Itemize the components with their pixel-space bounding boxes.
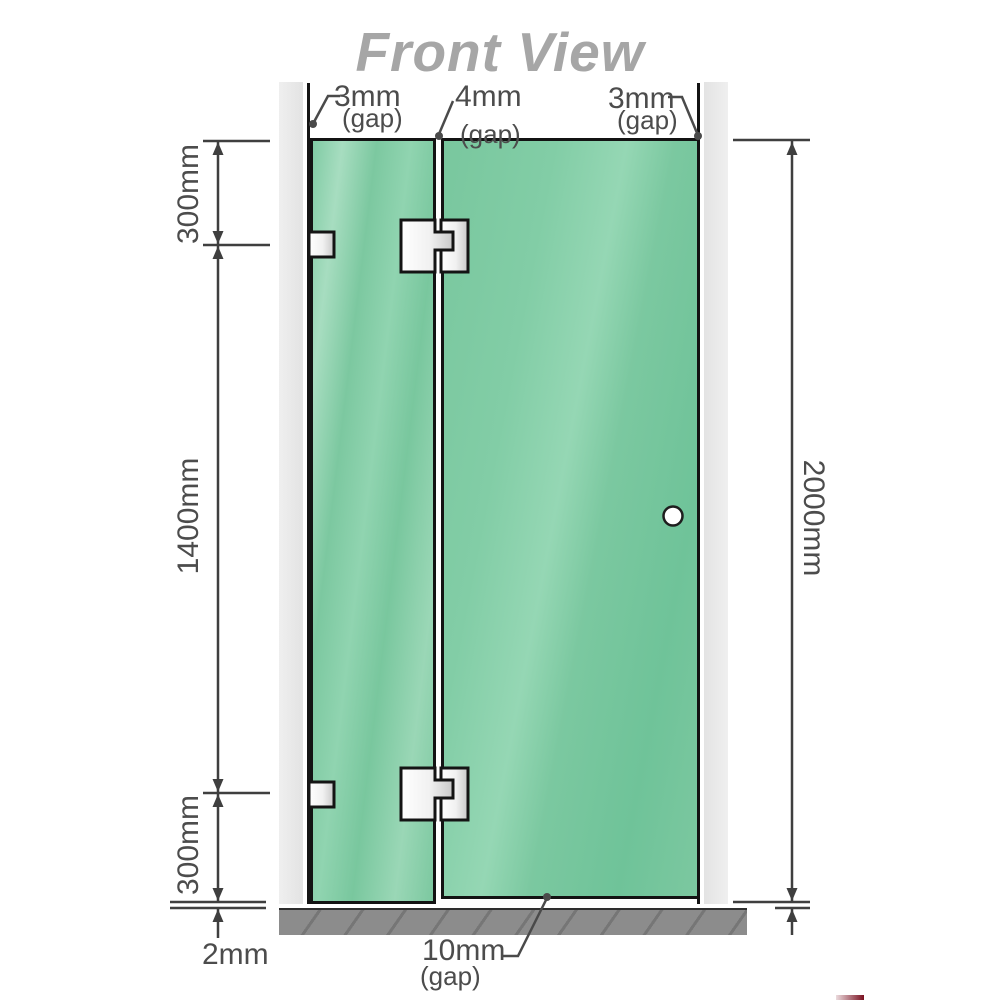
gap-left-sublabel: (gap) bbox=[342, 105, 403, 131]
wall-bracket-bottom bbox=[309, 782, 334, 807]
gap-middle-label: 4mm bbox=[455, 82, 522, 112]
gap-bottom-sublabel: (gap) bbox=[420, 963, 481, 989]
gap-leaders bbox=[314, 96, 697, 956]
front-view-diagram: Front View bbox=[0, 0, 1000, 1000]
wall-bracket-top bbox=[309, 232, 334, 257]
dim-2mm: 2mm bbox=[202, 940, 269, 970]
gap-middle-sublabel: (gap) bbox=[460, 121, 521, 147]
hinge-top bbox=[401, 220, 468, 272]
gap-right-sublabel: (gap) bbox=[617, 107, 678, 133]
dim-300mm-bottom: 300mm bbox=[174, 795, 204, 895]
dim-2000mm: 2000mm bbox=[798, 460, 828, 577]
dim-1400mm: 1400mm bbox=[174, 458, 204, 575]
corner-artifact bbox=[836, 995, 864, 1000]
door-knob bbox=[664, 507, 683, 526]
diagram-linework bbox=[0, 0, 1000, 1000]
hinge-bottom bbox=[401, 768, 468, 820]
dim-300mm-top: 300mm bbox=[174, 144, 204, 244]
gap-leader-dots bbox=[309, 120, 702, 901]
